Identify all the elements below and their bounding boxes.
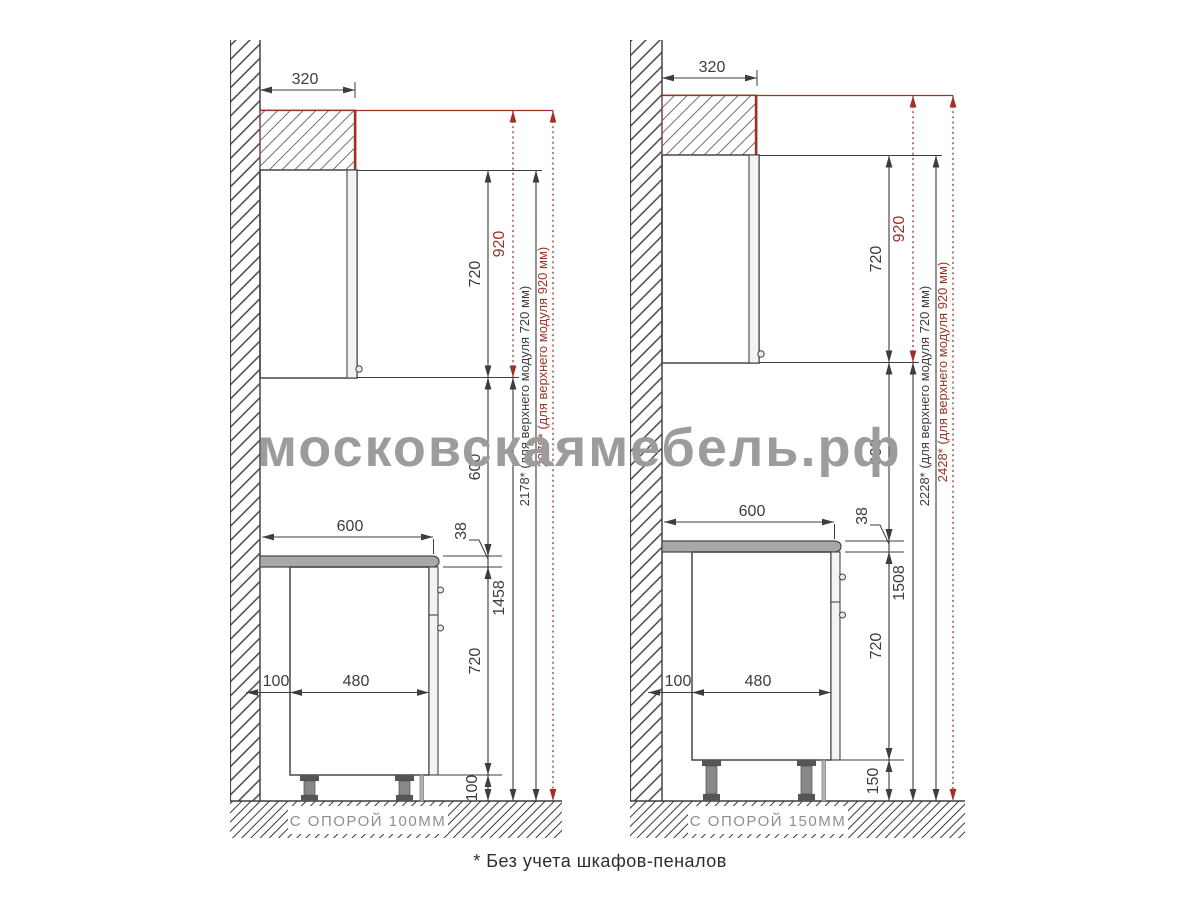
dim-arrowhead — [910, 363, 917, 375]
leg-foot — [301, 795, 318, 801]
dim-label-wall-gap: 100 — [263, 673, 290, 690]
watermark: московскаямебель.рф — [257, 421, 902, 475]
dim-label-countertop-thickness: 38 — [854, 507, 871, 525]
door-knob — [840, 612, 846, 618]
base-cabinet-front — [831, 552, 840, 760]
dim-label-support-height: 150 — [865, 768, 882, 795]
dim-label-upper-zone-height: 920 — [491, 231, 508, 258]
dim-arrowhead — [933, 789, 940, 801]
floor-caption: С ОПОРОЙ 100ММ — [290, 812, 446, 830]
dim-arrowhead — [485, 171, 492, 183]
drawer-knob — [840, 574, 846, 580]
dim-arrowhead — [290, 689, 302, 696]
upper-cabinet-knob — [758, 351, 764, 357]
upper-cabinet — [260, 170, 357, 378]
countertop — [260, 556, 439, 567]
dim-arrowhead — [933, 156, 940, 168]
dim-arrowhead — [485, 763, 492, 775]
dim-label-upper-height: 720 — [868, 246, 885, 273]
dim-label-floor-to-upper: 1508 — [891, 565, 908, 601]
dim-arrowhead — [510, 366, 517, 378]
dim-label-base-height: 720 — [868, 633, 885, 660]
dim-label-top-depth: 320 — [699, 59, 726, 76]
footnote: * Без учета шкафов-пеналов — [0, 851, 1200, 872]
dim-label-counter-depth: 600 — [739, 503, 766, 520]
door-knob — [438, 625, 444, 631]
leg-foot — [396, 795, 413, 801]
dim-arrowhead — [910, 351, 917, 363]
dim-arrowhead — [485, 789, 492, 801]
dim-arrowhead — [533, 171, 540, 183]
dim-arrowhead — [950, 96, 957, 108]
leg-cap — [702, 760, 721, 766]
dim-label-total-720: 2228* (для верхнего модуля 720 мм) — [917, 286, 932, 506]
dim-label-support-height: 100 — [464, 775, 481, 802]
dim-arrowhead — [950, 789, 957, 801]
leg-cap — [300, 775, 319, 781]
dim-arrowhead — [485, 366, 492, 378]
leg-cap — [395, 775, 414, 781]
cabinet-legs — [702, 760, 826, 801]
dim-label-total-920: 2428* (для верхнего модуля 920 мм) — [935, 262, 950, 482]
dim-arrowhead — [886, 156, 893, 168]
leg-shaft — [706, 766, 717, 794]
dim-arrowhead — [260, 87, 272, 94]
dim-arrowhead — [550, 111, 557, 123]
dim-arrowhead — [745, 75, 757, 82]
rear-leg-line — [822, 760, 826, 801]
leg-cap — [797, 760, 816, 766]
dim-arrowhead — [822, 519, 834, 526]
dim-label-base-height: 720 — [467, 648, 484, 675]
dim-arrowhead — [910, 96, 917, 108]
dim-arrowhead — [343, 87, 355, 94]
dim-arrowhead — [421, 534, 433, 541]
leg-foot — [703, 794, 720, 801]
dim-arrowhead — [510, 378, 517, 390]
dim-arrowhead — [910, 789, 917, 801]
dim-label-top-depth: 320 — [292, 71, 319, 88]
wall-hatch — [230, 40, 260, 801]
dim-arrowhead — [664, 519, 676, 526]
dim-arrowhead — [485, 567, 492, 579]
upper-cabinet-door — [749, 155, 759, 363]
dim-label-base-depth: 480 — [343, 673, 370, 690]
upper-zone-hatch — [662, 95, 757, 155]
upper-cabinet-knob — [356, 366, 362, 372]
leg-shaft — [304, 781, 315, 795]
rear-leg-line — [420, 775, 424, 801]
dim-arrowhead — [510, 111, 517, 123]
dim-arrowhead — [417, 689, 429, 696]
dim-arrowhead — [485, 775, 492, 787]
dim-arrowhead — [692, 689, 704, 696]
dim-arrowhead — [886, 363, 893, 375]
cabinet-legs — [300, 775, 424, 801]
upper-cabinet — [662, 155, 759, 363]
dim-arrowhead — [886, 760, 893, 772]
leg-shaft — [399, 781, 410, 795]
dim-label-counter-depth: 600 — [337, 518, 364, 535]
dim-label-countertop-thickness: 38 — [453, 522, 470, 540]
dim-arrowhead — [886, 789, 893, 801]
base-cabinet — [692, 552, 831, 760]
dim-arrowhead — [485, 378, 492, 390]
dim-label-wall-gap: 100 — [665, 673, 692, 690]
dim-arrowhead — [262, 534, 274, 541]
dim-label-floor-to-upper: 1458 — [491, 580, 508, 616]
dim-arrowhead — [550, 789, 557, 801]
upper-cabinet-door — [347, 170, 357, 378]
leg-foot — [798, 794, 815, 801]
leg-shaft — [801, 766, 812, 794]
dim-arrowhead — [510, 789, 517, 801]
dim-arrowhead — [819, 689, 831, 696]
drawer-knob — [438, 587, 444, 593]
dim-arrowhead — [886, 351, 893, 363]
dim-arrowhead — [886, 552, 893, 564]
floor-caption: С ОПОРОЙ 150ММ — [690, 812, 846, 830]
technical-drawing-canvas: С ОПОРОЙ 100ММ 320 600 — [0, 0, 1200, 900]
dim-label-upper-height: 720 — [467, 261, 484, 288]
dim-label-base-depth: 480 — [745, 673, 772, 690]
dim-arrowhead — [533, 789, 540, 801]
upper-zone-hatch — [260, 110, 356, 170]
base-cabinet — [290, 567, 429, 775]
countertop — [662, 541, 841, 552]
dim-arrowhead — [662, 75, 674, 82]
base-cabinet-front — [429, 567, 438, 775]
dim-arrowhead — [886, 748, 893, 760]
dim-label-upper-zone-height: 920 — [891, 216, 908, 243]
